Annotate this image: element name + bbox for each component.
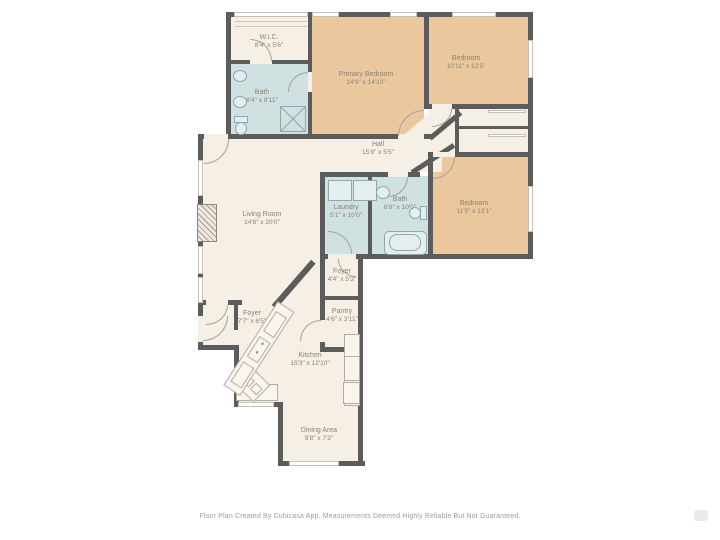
window: [528, 40, 533, 78]
washer-icon: [328, 180, 352, 201]
room-label-kitchen: Kitchen 15'3" x 12'10": [250, 351, 370, 368]
window: [289, 461, 339, 466]
room-label-foyer-upper: Foyer 4'4" x 5'3": [307, 267, 377, 284]
bathtub-icon: [389, 234, 421, 251]
window: [238, 402, 274, 407]
island-box: [250, 383, 263, 396]
room-label-dining: Dining Area 9'8" x 7'3": [259, 426, 379, 443]
window: [198, 277, 203, 303]
cubicasa-watermark: [694, 510, 708, 521]
room-label-living-room: Living Room 14'6" x 20'0": [202, 210, 322, 227]
closet-sliding-door: [488, 134, 526, 137]
closet-sliding-door: [488, 110, 526, 113]
room-label-pantry: Pantry 4'6" x 3'11": [307, 307, 377, 324]
window: [312, 12, 339, 17]
window: [234, 12, 308, 17]
window: [390, 12, 417, 17]
shower-icon: [280, 106, 306, 132]
room-label-hall: Hall 15'8" x 5'5": [318, 140, 438, 157]
disclaimer-text: Floor Plan Created By Cubicasa App. Meas…: [0, 513, 720, 520]
sink-icon: [233, 70, 247, 82]
closet-shelf: [235, 26, 307, 27]
room-label-bath-primary: Bath 8'4" x 8'11": [202, 88, 322, 105]
window: [452, 12, 496, 17]
wall: [226, 12, 231, 139]
wall: [198, 345, 238, 350]
window: [198, 160, 203, 196]
wall: [428, 254, 533, 259]
wall: [320, 296, 363, 300]
closet-shelf: [235, 21, 307, 22]
room-label-primary-bedroom: Primary Bedroom 14'9" x 14'10": [306, 70, 426, 87]
fridge-icon: [343, 382, 360, 404]
room-label-bedroom-2: Bedroom 10'11" x 12'5": [406, 54, 526, 71]
room-label-bedroom-3: Bedroom 11'5" x 13'1": [414, 199, 534, 216]
room-label-wic: W.I.C. 8'4" x 5'6": [209, 33, 329, 50]
toilet-icon: [235, 122, 247, 135]
kitchen-counter: [344, 380, 360, 381]
floor-plan: W.I.C. 8'4" x 5'6" Bath 8'4" x 8'11" Pri…: [0, 0, 720, 540]
closet-floor: [459, 129, 528, 152]
wall: [457, 126, 529, 129]
room-label-foyer-main: Foyer 7'7" x 6'5": [212, 309, 292, 326]
window: [198, 246, 203, 274]
